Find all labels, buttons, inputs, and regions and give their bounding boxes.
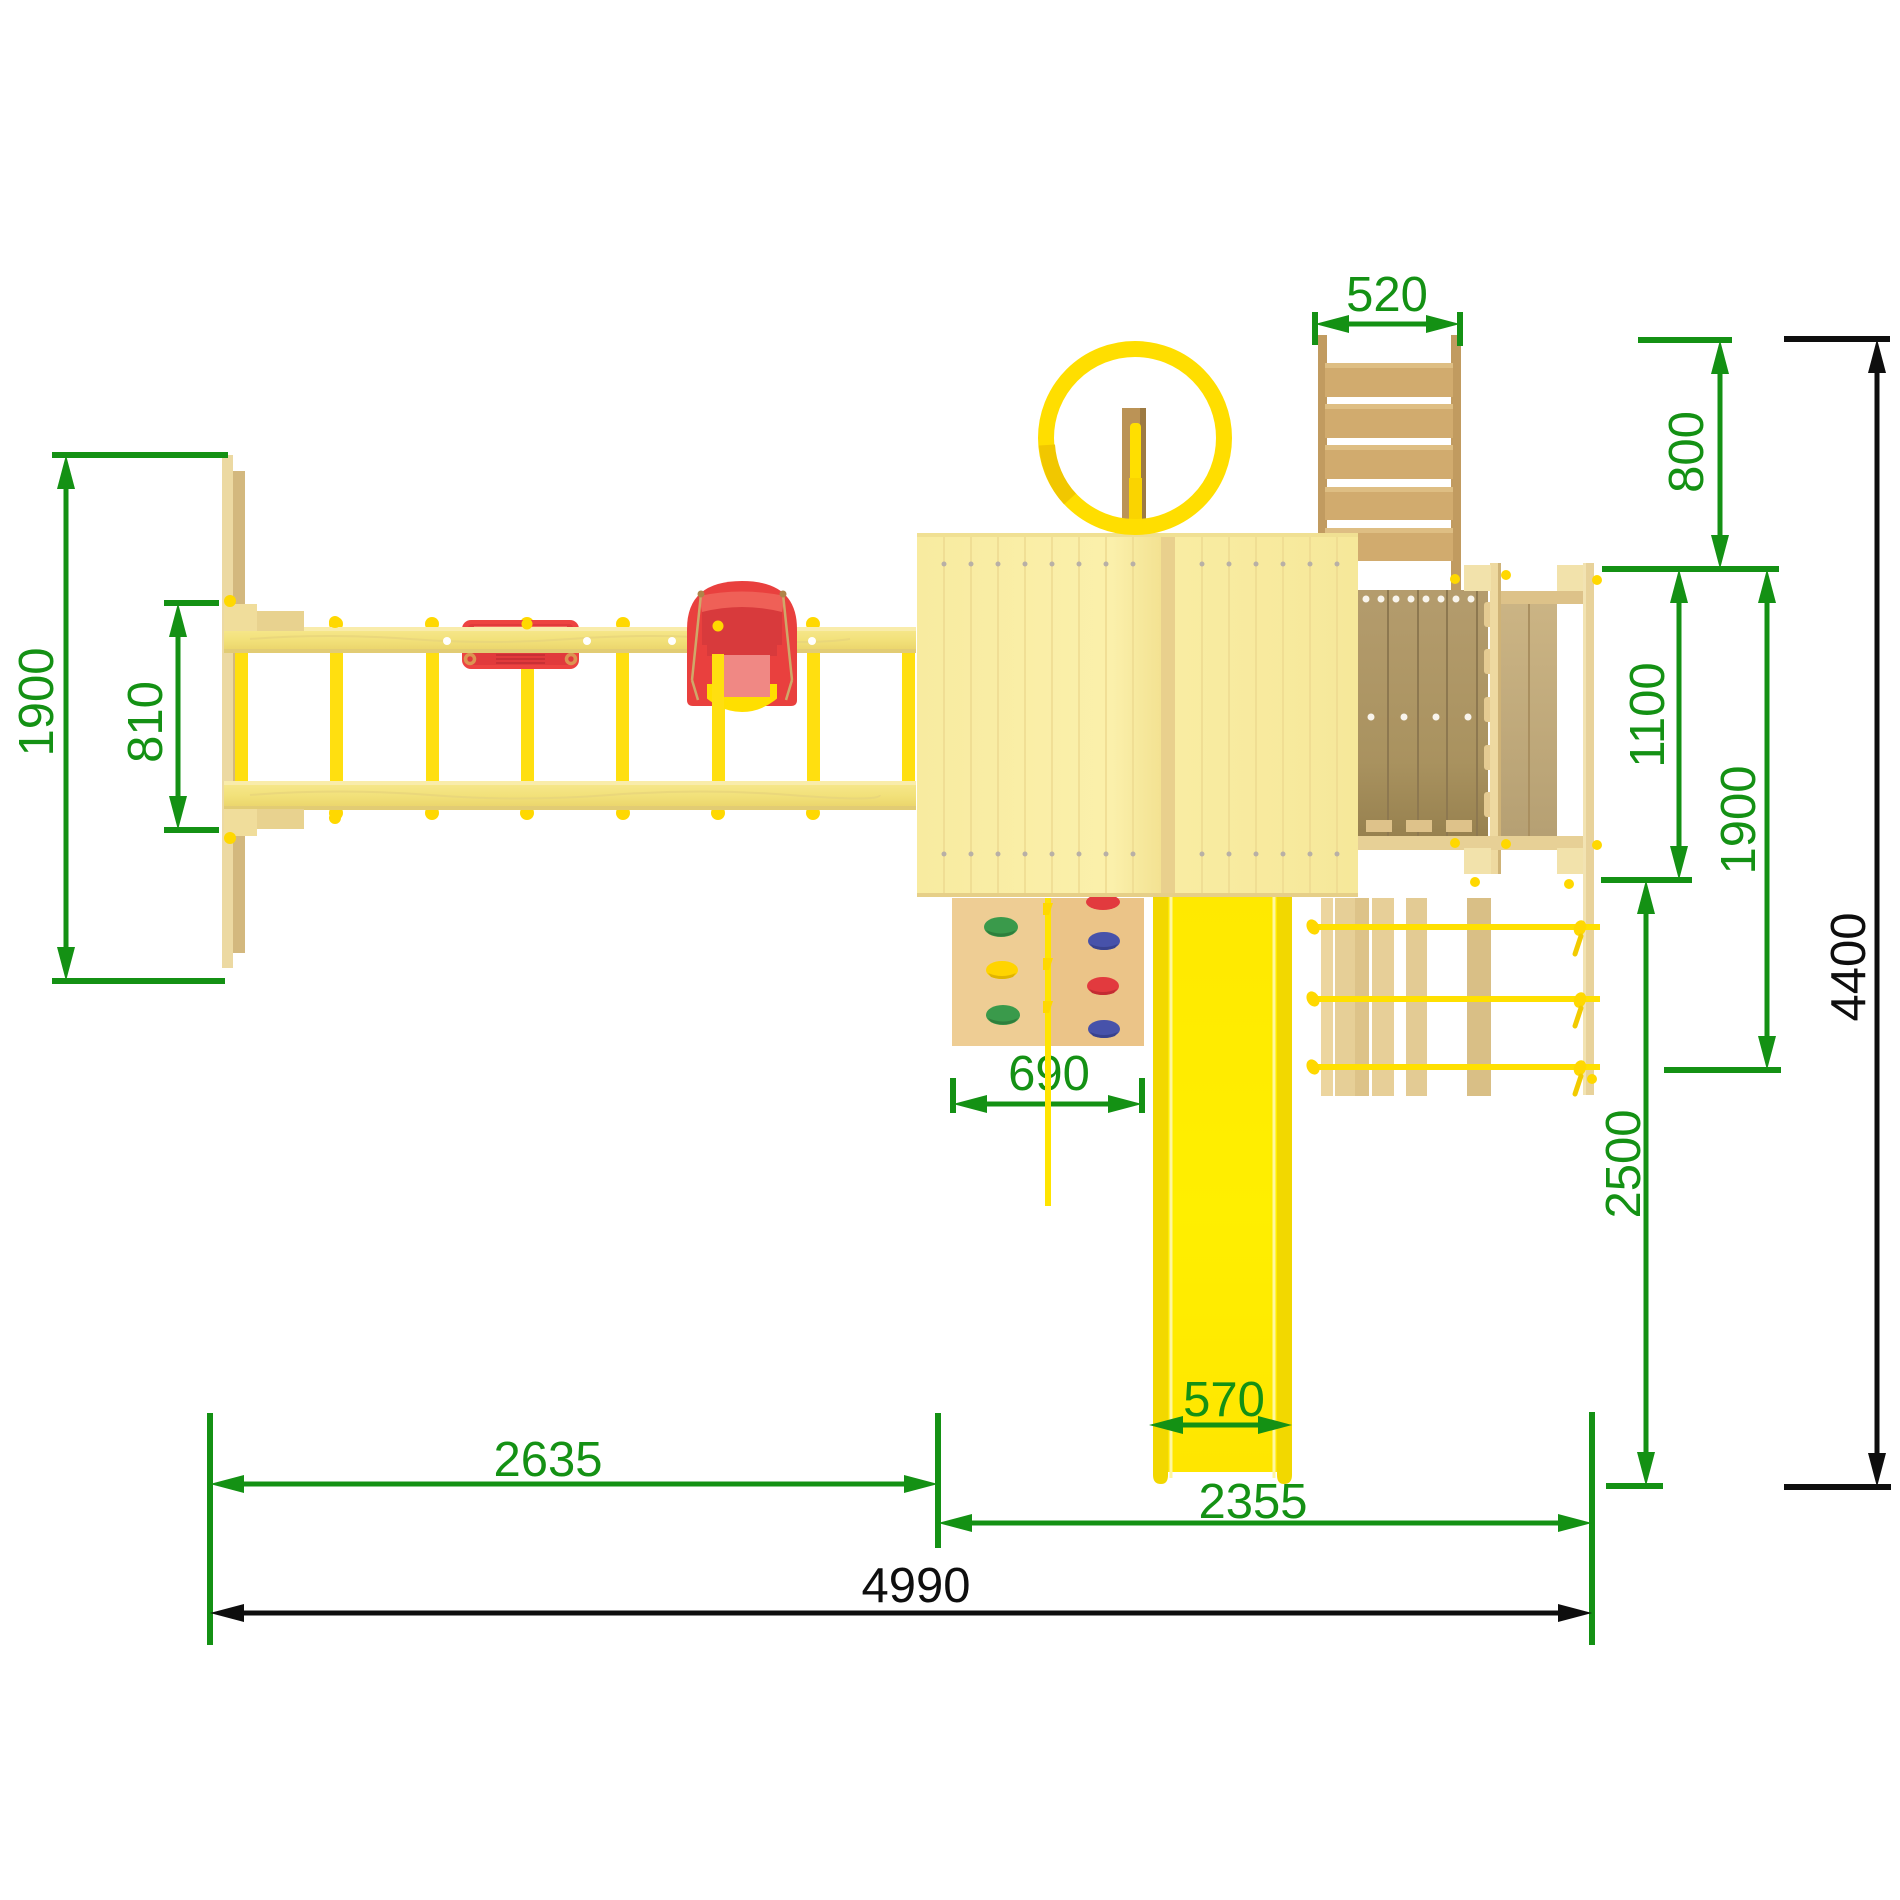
svg-text:570: 570 xyxy=(1183,1373,1265,1427)
svg-text:1100: 1100 xyxy=(1621,662,1675,767)
svg-text:4990: 4990 xyxy=(861,1559,970,1613)
svg-text:1900: 1900 xyxy=(1712,765,1766,874)
svg-text:2635: 2635 xyxy=(493,1433,602,1487)
svg-text:520: 520 xyxy=(1346,268,1428,322)
svg-text:2500: 2500 xyxy=(1597,1109,1651,1218)
svg-text:2355: 2355 xyxy=(1198,1475,1307,1529)
svg-text:4400: 4400 xyxy=(1822,912,1876,1021)
svg-text:810: 810 xyxy=(119,681,173,763)
svg-text:1900: 1900 xyxy=(10,647,64,756)
svg-text:800: 800 xyxy=(1660,411,1714,493)
